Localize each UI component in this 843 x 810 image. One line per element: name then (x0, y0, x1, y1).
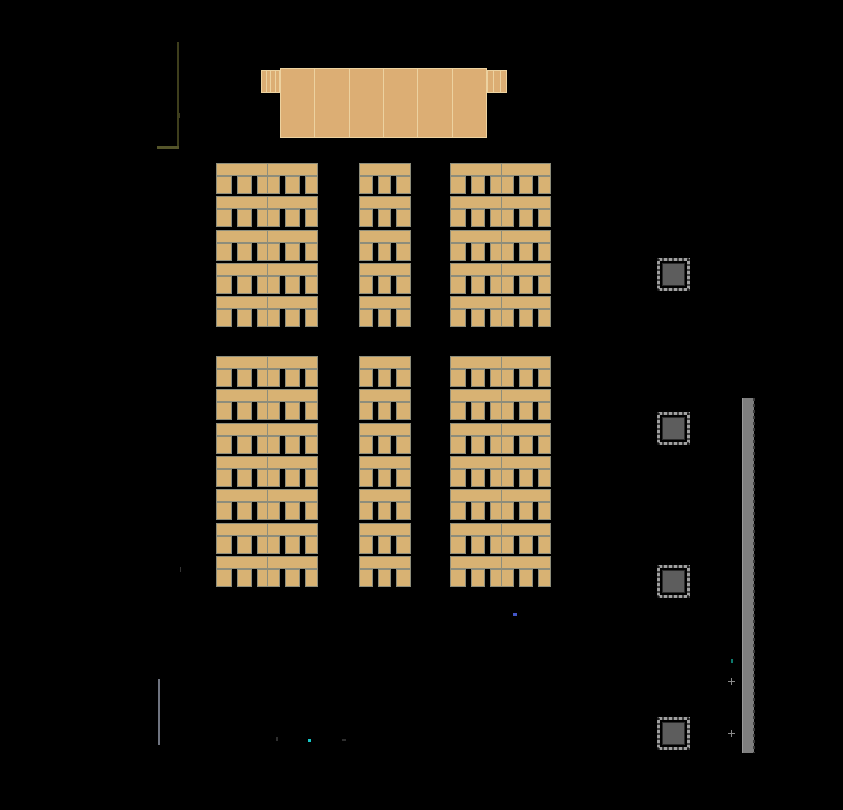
chair[interactable] (216, 436, 232, 454)
chair[interactable] (305, 536, 318, 554)
desk-unit[interactable] (450, 196, 551, 227)
desk-unit[interactable] (359, 356, 411, 387)
chair-row (359, 176, 411, 194)
chair[interactable] (471, 176, 485, 194)
cyan-marker (308, 739, 311, 742)
desk-unit[interactable] (359, 230, 411, 261)
chair-row (359, 469, 411, 487)
chair[interactable] (471, 536, 485, 554)
chair[interactable] (450, 369, 466, 387)
chair[interactable] (396, 369, 411, 387)
chair[interactable] (216, 309, 232, 327)
desk-unit[interactable] (450, 296, 551, 327)
wall-bottom-left-vertical (158, 679, 160, 745)
desk-surface (359, 296, 411, 309)
chair[interactable] (490, 176, 513, 194)
chair[interactable] (216, 502, 232, 520)
chair[interactable] (257, 569, 280, 587)
desk-divider-line (501, 230, 502, 261)
desk-divider-line (267, 356, 268, 387)
chair[interactable] (396, 436, 411, 454)
desk-unit[interactable] (216, 523, 318, 554)
chair[interactable] (490, 436, 513, 454)
chair[interactable] (237, 309, 251, 327)
table-cell (384, 69, 418, 137)
chair[interactable] (538, 536, 551, 554)
chair[interactable] (450, 569, 466, 587)
desk-surface (359, 356, 411, 369)
chair[interactable] (216, 469, 232, 487)
desk-surface (359, 196, 411, 209)
desk-unit[interactable] (216, 489, 318, 520)
chair-row (359, 369, 411, 387)
tick-1 (276, 737, 278, 741)
chair[interactable] (519, 502, 533, 520)
pillar-core (662, 722, 685, 745)
chair[interactable] (538, 436, 551, 454)
chair[interactable] (285, 502, 299, 520)
desk-unit[interactable] (216, 163, 318, 194)
chair[interactable] (450, 436, 466, 454)
chair[interactable] (257, 176, 280, 194)
chair[interactable] (257, 209, 280, 227)
chair[interactable] (378, 569, 390, 587)
desk-divider-line (501, 489, 502, 520)
chair[interactable] (359, 309, 373, 327)
chair[interactable] (285, 436, 299, 454)
chair[interactable] (378, 369, 390, 387)
chair[interactable] (396, 209, 411, 227)
chair[interactable] (471, 276, 485, 294)
desk-divider-line (501, 296, 502, 327)
desk-divider-line (267, 196, 268, 227)
chair[interactable] (450, 276, 466, 294)
desk-surface (359, 556, 411, 569)
chair[interactable] (396, 502, 411, 520)
chair[interactable] (471, 243, 485, 261)
table-cell (281, 69, 315, 137)
desk-surface (359, 230, 411, 243)
chair[interactable] (519, 309, 533, 327)
chair[interactable] (471, 436, 485, 454)
desk-unit[interactable] (450, 489, 551, 520)
chair[interactable] (285, 176, 299, 194)
chair[interactable] (216, 369, 232, 387)
desk-unit[interactable] (450, 263, 551, 294)
floor-plan-canvas[interactable] (0, 0, 843, 810)
chair[interactable] (257, 369, 280, 387)
chair[interactable] (285, 569, 299, 587)
desk-unit[interactable] (216, 296, 318, 327)
chair[interactable] (359, 369, 373, 387)
chair[interactable] (359, 536, 373, 554)
chair-row (359, 276, 411, 294)
chair[interactable] (519, 176, 533, 194)
chair[interactable] (216, 569, 232, 587)
chair-row (359, 436, 411, 454)
chair[interactable] (378, 243, 390, 261)
chair[interactable] (216, 209, 232, 227)
chair[interactable] (490, 276, 513, 294)
chair[interactable] (285, 243, 299, 261)
chair[interactable] (378, 502, 390, 520)
chair[interactable] (538, 209, 551, 227)
chair[interactable] (450, 502, 466, 520)
table-cell (453, 69, 486, 137)
chair[interactable] (305, 569, 318, 587)
chair-row (359, 569, 411, 587)
chair[interactable] (257, 276, 280, 294)
chair[interactable] (237, 536, 251, 554)
desk-divider-line (501, 556, 502, 587)
table-cell (350, 69, 384, 137)
desk-unit[interactable] (359, 196, 411, 227)
chair[interactable] (257, 309, 280, 327)
pillar-core (662, 417, 685, 440)
wall-top-left-horizontal (157, 146, 179, 149)
chair[interactable] (285, 309, 299, 327)
chair[interactable] (378, 402, 390, 420)
table-cell (501, 71, 506, 92)
desk-unit[interactable] (359, 263, 411, 294)
desk-unit[interactable] (450, 556, 551, 587)
chair[interactable] (285, 469, 299, 487)
chair[interactable] (257, 502, 280, 520)
chair[interactable] (305, 309, 318, 327)
chair[interactable] (378, 209, 390, 227)
chair[interactable] (359, 469, 373, 487)
chair[interactable] (237, 502, 251, 520)
chair-row (359, 402, 411, 420)
tick-4 (180, 567, 181, 572)
chair[interactable] (396, 469, 411, 487)
chair[interactable] (285, 209, 299, 227)
desk-unit[interactable] (216, 356, 318, 387)
chair[interactable] (378, 309, 390, 327)
chair[interactable] (305, 502, 318, 520)
desk-divider-line (501, 423, 502, 454)
chair[interactable] (216, 536, 232, 554)
chair[interactable] (538, 276, 551, 294)
chair[interactable] (450, 243, 466, 261)
desk-unit[interactable] (359, 423, 411, 454)
chair[interactable] (237, 569, 251, 587)
chair[interactable] (519, 209, 533, 227)
desk-surface (359, 163, 411, 176)
desk-unit[interactable] (450, 356, 551, 387)
chair[interactable] (450, 176, 466, 194)
wall-top-left-vertical (177, 42, 179, 148)
desk-unit[interactable] (216, 556, 318, 587)
desk-divider-line (501, 389, 502, 420)
desk-unit[interactable] (450, 456, 551, 487)
lecture-table[interactable] (280, 68, 487, 138)
chair[interactable] (257, 402, 280, 420)
tick-2 (342, 739, 346, 741)
chair[interactable] (257, 469, 280, 487)
chair[interactable] (216, 402, 232, 420)
chair-row (359, 243, 411, 261)
blue-marker (513, 613, 517, 616)
desk-unit[interactable] (450, 163, 551, 194)
chair[interactable] (490, 309, 513, 327)
lecture-table-left-wing[interactable] (261, 70, 280, 93)
chair[interactable] (519, 436, 533, 454)
chair[interactable] (538, 369, 551, 387)
desk-unit[interactable] (216, 196, 318, 227)
chair[interactable] (450, 402, 466, 420)
chair[interactable] (450, 469, 466, 487)
chair[interactable] (519, 536, 533, 554)
chair[interactable] (359, 176, 373, 194)
desk-divider-line (501, 523, 502, 554)
structural-column[interactable] (657, 565, 690, 598)
chair[interactable] (359, 436, 373, 454)
desk-divider-line (501, 356, 502, 387)
chair[interactable] (450, 536, 466, 554)
chair[interactable] (285, 276, 299, 294)
desk-divider-line (501, 196, 502, 227)
desk-unit[interactable] (450, 523, 551, 554)
desk-unit[interactable] (216, 389, 318, 420)
chair[interactable] (378, 436, 390, 454)
cross-marker-2 (728, 730, 735, 737)
chair[interactable] (305, 243, 318, 261)
chair[interactable] (471, 369, 485, 387)
chair[interactable] (378, 536, 390, 554)
chair[interactable] (396, 536, 411, 554)
desk-unit[interactable] (359, 556, 411, 587)
chair[interactable] (471, 569, 485, 587)
chair[interactable] (471, 209, 485, 227)
chair[interactable] (471, 402, 485, 420)
chair[interactable] (305, 436, 318, 454)
chair[interactable] (216, 243, 232, 261)
chair[interactable] (237, 369, 251, 387)
chair[interactable] (490, 402, 513, 420)
desk-divider-line (267, 296, 268, 327)
chair[interactable] (305, 402, 318, 420)
desk-surface (359, 523, 411, 536)
chair[interactable] (490, 209, 513, 227)
chair-row (359, 536, 411, 554)
desk-unit[interactable] (450, 389, 551, 420)
cross-marker-1 (728, 678, 735, 685)
chair[interactable] (538, 243, 551, 261)
chair[interactable] (519, 243, 533, 261)
chair-row (359, 502, 411, 520)
chair[interactable] (237, 436, 251, 454)
desk-divider-line (501, 456, 502, 487)
desk-divider-line (267, 456, 268, 487)
desk-unit[interactable] (359, 163, 411, 194)
chair[interactable] (396, 309, 411, 327)
desk-unit[interactable] (216, 423, 318, 454)
chair[interactable] (538, 569, 551, 587)
desk-divider-line (267, 523, 268, 554)
desk-surface (359, 263, 411, 276)
chair[interactable] (237, 176, 251, 194)
chair[interactable] (490, 502, 513, 520)
chair[interactable] (490, 569, 513, 587)
desk-surface (359, 423, 411, 436)
chair[interactable] (396, 243, 411, 261)
chair[interactable] (237, 469, 251, 487)
chair[interactable] (285, 369, 299, 387)
chair[interactable] (216, 276, 232, 294)
chair[interactable] (490, 369, 513, 387)
desk-divider-line (267, 163, 268, 194)
chair[interactable] (471, 309, 485, 327)
chair[interactable] (538, 402, 551, 420)
chair[interactable] (285, 536, 299, 554)
chair[interactable] (257, 536, 280, 554)
chair[interactable] (519, 402, 533, 420)
chair[interactable] (305, 176, 318, 194)
desk-divider-line (267, 423, 268, 454)
chair[interactable] (519, 276, 533, 294)
desk-unit[interactable] (359, 489, 411, 520)
side-wall-bar[interactable] (742, 398, 754, 753)
chair[interactable] (378, 276, 390, 294)
chair[interactable] (359, 502, 373, 520)
chair[interactable] (305, 469, 318, 487)
structural-column[interactable] (657, 717, 690, 750)
desk-divider-line (267, 230, 268, 261)
desk-unit[interactable] (359, 523, 411, 554)
desk-unit[interactable] (216, 263, 318, 294)
chair[interactable] (396, 276, 411, 294)
chair-row (359, 309, 411, 327)
chair[interactable] (471, 469, 485, 487)
structural-column[interactable] (657, 258, 690, 291)
chair[interactable] (450, 309, 466, 327)
chair[interactable] (359, 276, 373, 294)
chair[interactable] (216, 176, 232, 194)
chair[interactable] (378, 469, 390, 487)
chair-row (359, 209, 411, 227)
chair[interactable] (538, 309, 551, 327)
pillar-core (662, 263, 685, 286)
desk-unit[interactable] (359, 456, 411, 487)
desk-divider-line (267, 556, 268, 587)
chair[interactable] (378, 176, 390, 194)
chair[interactable] (359, 569, 373, 587)
desk-unit[interactable] (216, 230, 318, 261)
desk-unit[interactable] (450, 423, 551, 454)
chair[interactable] (490, 536, 513, 554)
desk-divider-line (267, 489, 268, 520)
desk-unit[interactable] (216, 456, 318, 487)
chair[interactable] (305, 209, 318, 227)
chair[interactable] (359, 243, 373, 261)
chair[interactable] (237, 243, 251, 261)
chair[interactable] (359, 402, 373, 420)
desk-unit[interactable] (450, 230, 551, 261)
chair[interactable] (490, 243, 513, 261)
table-cell (276, 71, 280, 92)
chair[interactable] (538, 502, 551, 520)
chair[interactable] (396, 569, 411, 587)
chair[interactable] (538, 176, 551, 194)
chair[interactable] (359, 209, 373, 227)
chair[interactable] (305, 369, 318, 387)
desk-surface (359, 389, 411, 402)
desk-divider-line (501, 163, 502, 194)
desk-surface (359, 456, 411, 469)
chair[interactable] (450, 209, 466, 227)
chair[interactable] (490, 469, 513, 487)
chair[interactable] (257, 436, 280, 454)
desk-divider-line (501, 263, 502, 294)
chair[interactable] (237, 276, 251, 294)
chair[interactable] (237, 209, 251, 227)
chair[interactable] (519, 469, 533, 487)
desk-surface (359, 489, 411, 502)
desk-unit[interactable] (359, 389, 411, 420)
desk-unit[interactable] (359, 296, 411, 327)
chair[interactable] (471, 502, 485, 520)
chair[interactable] (396, 176, 411, 194)
desk-divider-line (267, 263, 268, 294)
chair[interactable] (237, 402, 251, 420)
tick-3 (179, 113, 180, 118)
table-cell (418, 69, 452, 137)
desk-divider-line (267, 389, 268, 420)
structural-column[interactable] (657, 412, 690, 445)
chair[interactable] (538, 469, 551, 487)
table-cell (315, 69, 349, 137)
lecture-table-right-wing[interactable] (487, 70, 507, 93)
chair[interactable] (519, 369, 533, 387)
chair[interactable] (396, 402, 411, 420)
chair[interactable] (305, 276, 318, 294)
chair[interactable] (257, 243, 280, 261)
teal-marker (731, 659, 733, 663)
chair[interactable] (285, 402, 299, 420)
chair[interactable] (519, 569, 533, 587)
pillar-core (662, 570, 685, 593)
